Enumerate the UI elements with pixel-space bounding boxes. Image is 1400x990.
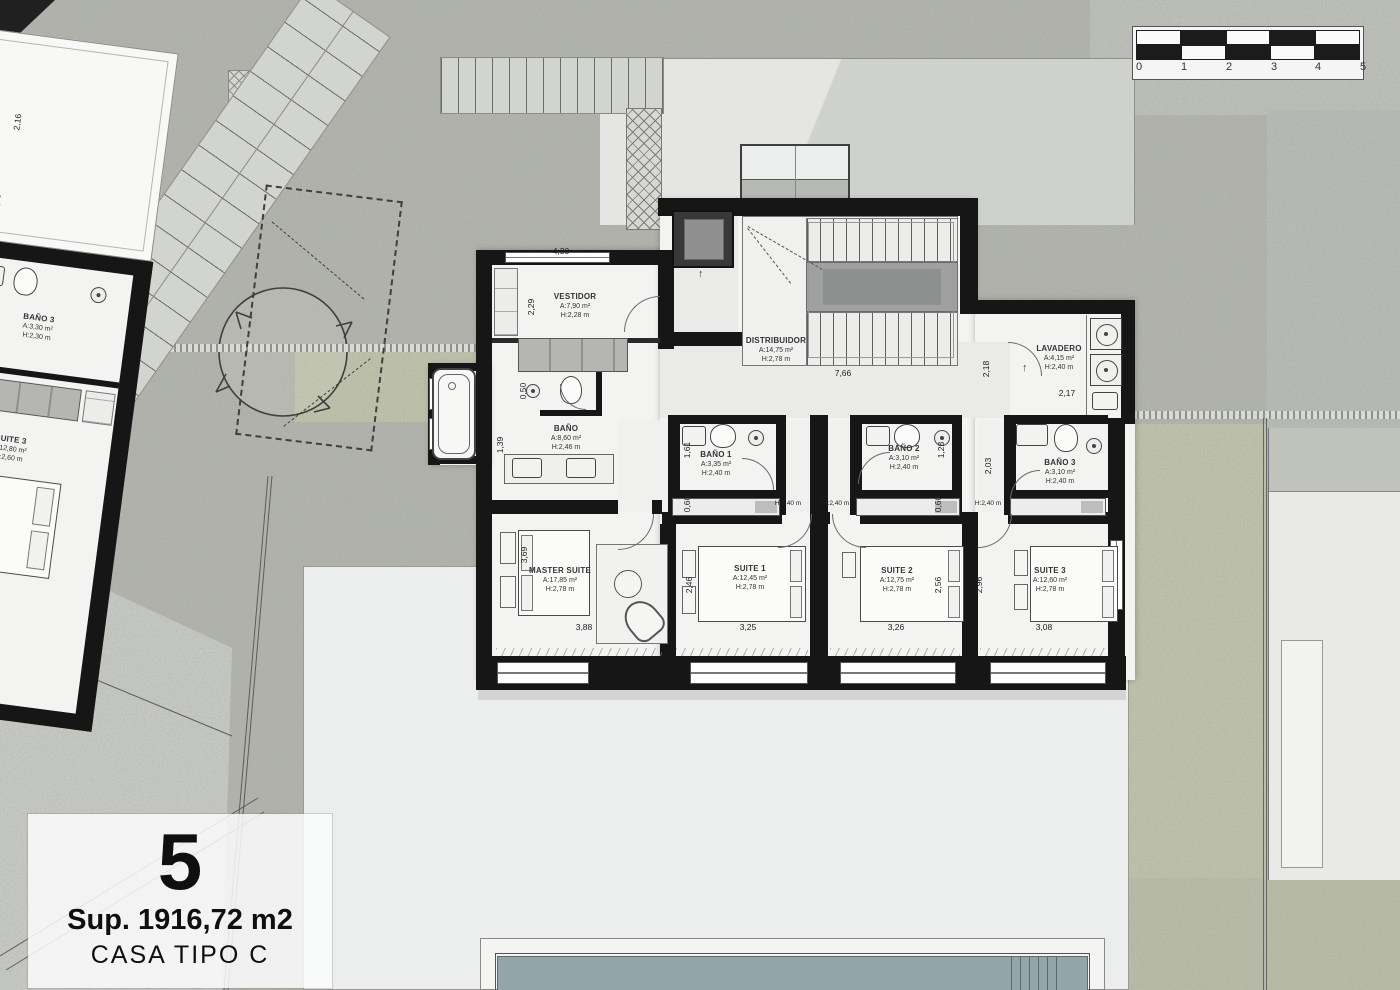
garage-roof <box>0 29 179 262</box>
dimension: 3,69 <box>519 540 529 570</box>
stool <box>614 570 642 598</box>
plot-surface: Sup. 1916,72 m2 <box>67 904 293 937</box>
room-area: A:3,10 m² <box>864 454 944 463</box>
dimension: 2,46 <box>684 570 694 600</box>
plot-boundary-line <box>1263 418 1267 990</box>
room-area: A:7,90 m² <box>530 302 620 311</box>
room-area: A:14,75 m² <box>716 346 836 355</box>
sink-round <box>526 384 540 398</box>
room-label-master: MASTER SUITE A:17,85 m² H:2,78 m <box>505 566 615 595</box>
shelf <box>82 390 116 426</box>
dimension: 0,60 <box>682 489 692 519</box>
pool-steps <box>1011 957 1057 990</box>
bench <box>1010 498 1106 516</box>
vestidor-closet <box>518 338 628 372</box>
room-height: H:2,40 m <box>864 463 944 472</box>
room-label-suite3: SUITE 3 A:12,60 m² H:2,78 m <box>1005 566 1095 595</box>
house-type: CASA TIPO C <box>91 941 270 970</box>
room-area: A:12,75 m² <box>852 576 942 585</box>
room-height: H:2,28 m <box>530 311 620 320</box>
room-area: A:12,60 m² <box>1005 576 1095 585</box>
bathtub <box>432 368 476 460</box>
window-master <box>497 662 589 684</box>
room-label-bano2: BAÑO 2 A:3,10 m² H:2,40 m <box>864 444 944 473</box>
scale-tick: 0 <box>1136 61 1142 73</box>
dimension: 0,50 <box>518 376 528 406</box>
wall-segment <box>476 250 492 455</box>
wall-segment <box>850 490 962 498</box>
pool-water <box>497 956 1088 990</box>
room-area: A:3,10 m² <box>1020 468 1100 477</box>
toilet <box>1054 424 1078 452</box>
room-height: H:2,78 m <box>1005 585 1095 594</box>
dimension: 3,26 <box>881 622 911 632</box>
bench <box>856 498 960 516</box>
room-height: H:2,40 m <box>676 469 756 478</box>
pillow <box>948 586 960 618</box>
scale-bar-row-bottom <box>1136 45 1360 60</box>
room-name: SUITE 3 <box>1005 566 1095 576</box>
wall-segment <box>540 410 602 416</box>
dimension: 7,66 <box>828 368 858 378</box>
dimension: 0,60 <box>933 489 943 519</box>
dimension: 1,28 <box>936 435 946 465</box>
pillow <box>1102 586 1114 618</box>
dimension: H:2,40 m <box>816 500 856 507</box>
shower-icon <box>1086 438 1102 454</box>
dimension: 2,17 <box>1052 388 1082 398</box>
wall-segment <box>1004 415 1108 424</box>
chimney-shaft <box>672 210 734 268</box>
wall-segment <box>476 455 492 690</box>
nightstand <box>500 532 516 564</box>
room-height: H:2,78 m <box>852 585 942 594</box>
wall-segment <box>810 415 828 656</box>
sink <box>512 458 542 478</box>
room-height: H:2,78 m <box>505 585 615 594</box>
room-height: H:2,40 m <box>1020 477 1100 486</box>
scale-tick: 2 <box>1226 61 1232 73</box>
corridor-stub <box>786 420 810 512</box>
sink <box>866 426 890 446</box>
room-height: H:2,40 m <box>1014 363 1104 372</box>
neighbor-terrace <box>1268 428 1400 880</box>
dimension: 3,25 <box>733 622 763 632</box>
curtain-ticks <box>980 648 1106 656</box>
dimension: 4,30 <box>546 246 576 256</box>
wall-segment <box>960 198 978 308</box>
room-area: A:8,60 m² <box>521 434 611 443</box>
room-name: BAÑO <box>521 424 611 434</box>
room-label-suite2: SUITE 2 A:12,75 m² H:2,78 m <box>852 566 942 595</box>
window-suite2 <box>840 662 956 684</box>
room-name: BAÑO 2 <box>864 444 944 454</box>
pillow <box>948 550 960 582</box>
room-area: A:12,45 m² <box>705 574 795 583</box>
room-area: A:17,85 m² <box>505 576 615 585</box>
up-arrow-icon: ↑ <box>698 268 704 280</box>
plot-number: 5 <box>158 824 203 900</box>
sink <box>1016 424 1048 446</box>
scale-tick: 5 <box>1360 61 1366 73</box>
curtain-ticks <box>676 648 808 656</box>
corridor-stub <box>828 420 852 512</box>
scale-bar-numbers: 0 1 2 3 4 5 <box>1136 60 1360 76</box>
room-label-suite1: SUITE 1 A:12,45 m² H:2,78 m <box>705 564 795 593</box>
dimension: 2,29 <box>526 292 536 322</box>
vestidor-shelf <box>494 268 518 336</box>
room-label-bano: BAÑO A:8,60 m² H:2,46 m <box>521 424 611 453</box>
room-label-distribuidor: DISTRIBUIDOR A:14,75 m² H:2,78 m <box>716 336 836 365</box>
wall-segment <box>652 500 662 514</box>
room-name: BAÑO 3 <box>1020 458 1100 468</box>
sink <box>566 458 596 478</box>
window-suite3 <box>990 662 1106 684</box>
toilet <box>710 424 736 448</box>
dimension: 1,39 <box>495 430 505 460</box>
room-label-lavadero: LAVADERO A:4,15 m² H:2,40 m <box>1014 344 1104 373</box>
dimension: H:2,40 m <box>968 500 1008 507</box>
wall-segment <box>1121 300 1135 424</box>
dimension: H:2,40 m <box>768 500 808 507</box>
room-name: SUITE 1 <box>705 564 795 574</box>
dimension: 3,88 <box>569 622 599 632</box>
curtain-ticks <box>496 648 662 656</box>
wall-segment <box>492 500 618 514</box>
room-name: LAVADERO <box>1014 344 1104 354</box>
room-height: H:2,78 m <box>705 583 795 592</box>
scale-tick: 3 <box>1271 61 1277 73</box>
wall-segment <box>850 415 962 424</box>
room-height: H:2,78 m <box>716 355 836 364</box>
corridor-stub <box>618 420 672 512</box>
room-label-bano3: BAÑO 3 A:3,10 m² H:2,40 m <box>1020 458 1100 487</box>
curtain-ticks <box>830 648 960 656</box>
stair-skylight <box>740 144 850 202</box>
dimension: 2,56 <box>933 570 943 600</box>
dimension: 2,96 <box>974 570 984 600</box>
walkway-steps-horizontal <box>440 57 664 114</box>
room-area: A:4,15 m² <box>1014 354 1104 363</box>
room-height: H:2,46 m <box>521 443 611 452</box>
room-name: SUITE 2 <box>852 566 942 576</box>
dimension: 2,03 <box>983 451 993 481</box>
dimension: 3,08 <box>1029 622 1059 632</box>
title-block: 5 Sup. 1916,72 m2 CASA TIPO C <box>28 814 332 988</box>
wall-segment <box>960 300 1135 314</box>
laundry-sink <box>1092 392 1118 410</box>
floor-plan-canvas: BAÑO 3 A:3,30 m² H:2,30 m SUITE 3 A:12,8… <box>0 0 1400 990</box>
scale-tick: 4 <box>1315 61 1321 73</box>
room-name: DISTRIBUIDOR <box>716 336 836 346</box>
scale-tick: 1 <box>1181 61 1187 73</box>
room-label-vestidor: VESTIDOR A:7,90 m² H:2,28 m <box>530 292 620 321</box>
scale-bar: 0 1 2 3 4 5 <box>1132 26 1364 80</box>
house-shadow <box>478 690 1126 700</box>
window-suite1 <box>690 662 808 684</box>
shower-icon <box>748 430 764 446</box>
dimension: 1,61 <box>682 435 692 465</box>
room-name: VESTIDOR <box>530 292 620 302</box>
crosshatch-strip <box>626 108 662 230</box>
pillow <box>1102 550 1114 582</box>
wall-segment <box>668 415 786 424</box>
dimension: 2,18 <box>981 354 991 384</box>
swimming-pool <box>480 938 1105 990</box>
scale-bar-row-top <box>1136 30 1360 45</box>
